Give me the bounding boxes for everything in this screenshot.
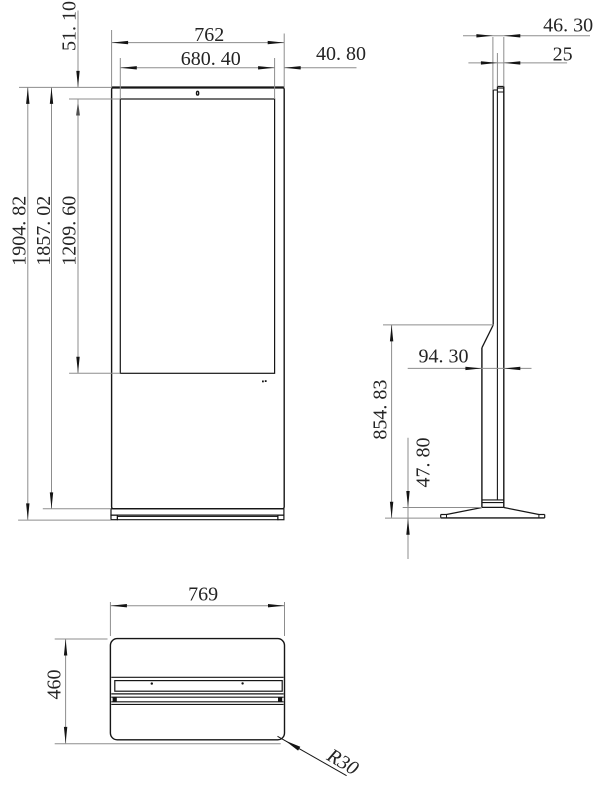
svg-text:762: 762 — [194, 24, 224, 46]
svg-text:1904. 82: 1904. 82 — [9, 196, 31, 266]
svg-text:854. 83: 854. 83 — [370, 380, 392, 440]
svg-text:25: 25 — [553, 44, 573, 66]
svg-text:1857. 02: 1857. 02 — [33, 196, 55, 266]
svg-text:460: 460 — [44, 670, 66, 700]
svg-text:769: 769 — [188, 584, 218, 606]
svg-text:51. 10: 51. 10 — [58, 1, 80, 51]
svg-text:94. 30: 94. 30 — [419, 346, 469, 368]
svg-text:1209. 60: 1209. 60 — [59, 196, 81, 266]
svg-text:47. 80: 47. 80 — [413, 438, 435, 488]
svg-text:46. 30: 46. 30 — [543, 15, 593, 37]
svg-text:680. 40: 680. 40 — [181, 48, 241, 70]
svg-text:40. 80: 40. 80 — [316, 43, 366, 65]
